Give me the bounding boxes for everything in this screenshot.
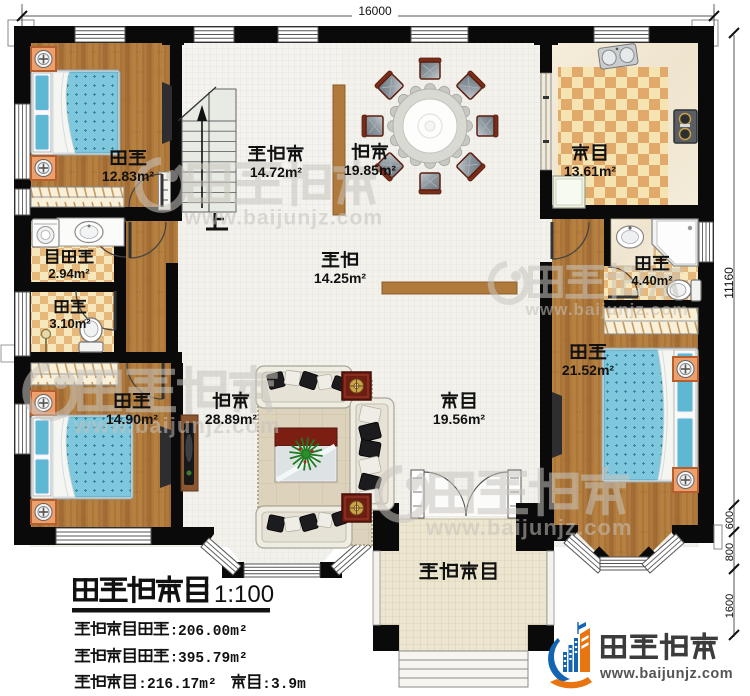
svg-text:2.94m²: 2.94m² (48, 266, 90, 281)
svg-text:14.72m²: 14.72m² (250, 164, 302, 180)
svg-text:19.85m²: 19.85m² (344, 162, 396, 178)
svg-text::: : (140, 675, 145, 692)
svg-text:1600: 1600 (724, 594, 736, 618)
svg-text:16000: 16000 (358, 4, 392, 18)
svg-text:13.61m²: 13.61m² (564, 163, 616, 179)
svg-text::: : (264, 675, 269, 692)
svg-text:1:100: 1:100 (214, 581, 274, 608)
svg-text:www.baijunjz.com: www.baijunjz.com (599, 666, 733, 682)
svg-text:800: 800 (724, 543, 736, 561)
svg-text:28.89m²: 28.89m² (205, 411, 257, 427)
svg-text:395.79m²: 395.79m² (178, 651, 248, 667)
svg-text:3.10m²: 3.10m² (49, 316, 91, 331)
svg-text:12.83m²: 12.83m² (102, 168, 154, 184)
svg-text:14.25m²: 14.25m² (314, 270, 366, 286)
svg-text::: : (172, 649, 177, 666)
svg-text:www.baijunjz.com: www.baijunjz.com (425, 515, 633, 540)
svg-text::: : (172, 622, 177, 639)
svg-text:600: 600 (724, 511, 736, 529)
svg-text:www.baijunjz.com: www.baijunjz.com (184, 206, 384, 229)
svg-text:4.40m²: 4.40m² (631, 273, 673, 288)
svg-text:21.52m²: 21.52m² (562, 362, 614, 378)
svg-text:www.baijunjz.com: www.baijunjz.com (525, 300, 689, 319)
svg-text:14.90m²: 14.90m² (106, 411, 158, 427)
svg-text:206.00m²: 206.00m² (178, 624, 248, 640)
svg-text:3.9m: 3.9m (271, 677, 306, 693)
svg-text:216.17m²: 216.17m² (147, 677, 217, 693)
svg-text:19.56m²: 19.56m² (433, 411, 485, 427)
svg-text:11160: 11160 (722, 267, 736, 299)
